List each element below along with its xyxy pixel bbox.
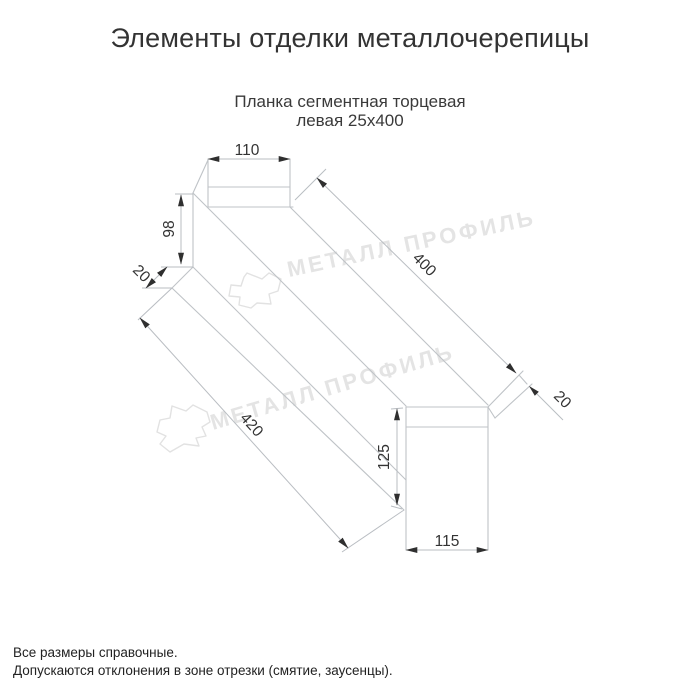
footer-notes: Все размеры справочные. Допускаются откл… (13, 644, 663, 679)
dim-20-left-label: 20 (129, 262, 153, 286)
dimension-98: 98 (161, 195, 181, 264)
dim-20-right-label: 20 (550, 388, 574, 412)
dimension-115: 115 (406, 533, 488, 550)
dimension-20-right: 20 (529, 386, 575, 420)
watermark-cloud-icon (157, 405, 210, 452)
dimension-125: 125 (376, 409, 397, 505)
footer-note-2: Допускаются отклонения в зоне отрезки (с… (13, 662, 663, 680)
technical-drawing: МЕТАЛЛ ПРОФИЛЬ МЕТАЛЛ ПРОФИЛЬ (0, 0, 700, 700)
dim-125-label: 125 (376, 444, 393, 470)
dimension-400: 400 (317, 178, 516, 373)
dimension-420: 420 (140, 318, 348, 548)
dimension-110: 110 (208, 142, 290, 159)
dim-110-label: 110 (235, 142, 260, 159)
dim-115-label: 115 (435, 533, 460, 550)
watermark-cloud-icon (229, 273, 281, 308)
dim-98-label: 98 (161, 220, 178, 237)
dimension-20-left: 20 (129, 262, 167, 288)
footer-note-1: Все размеры справочные. (13, 644, 663, 662)
